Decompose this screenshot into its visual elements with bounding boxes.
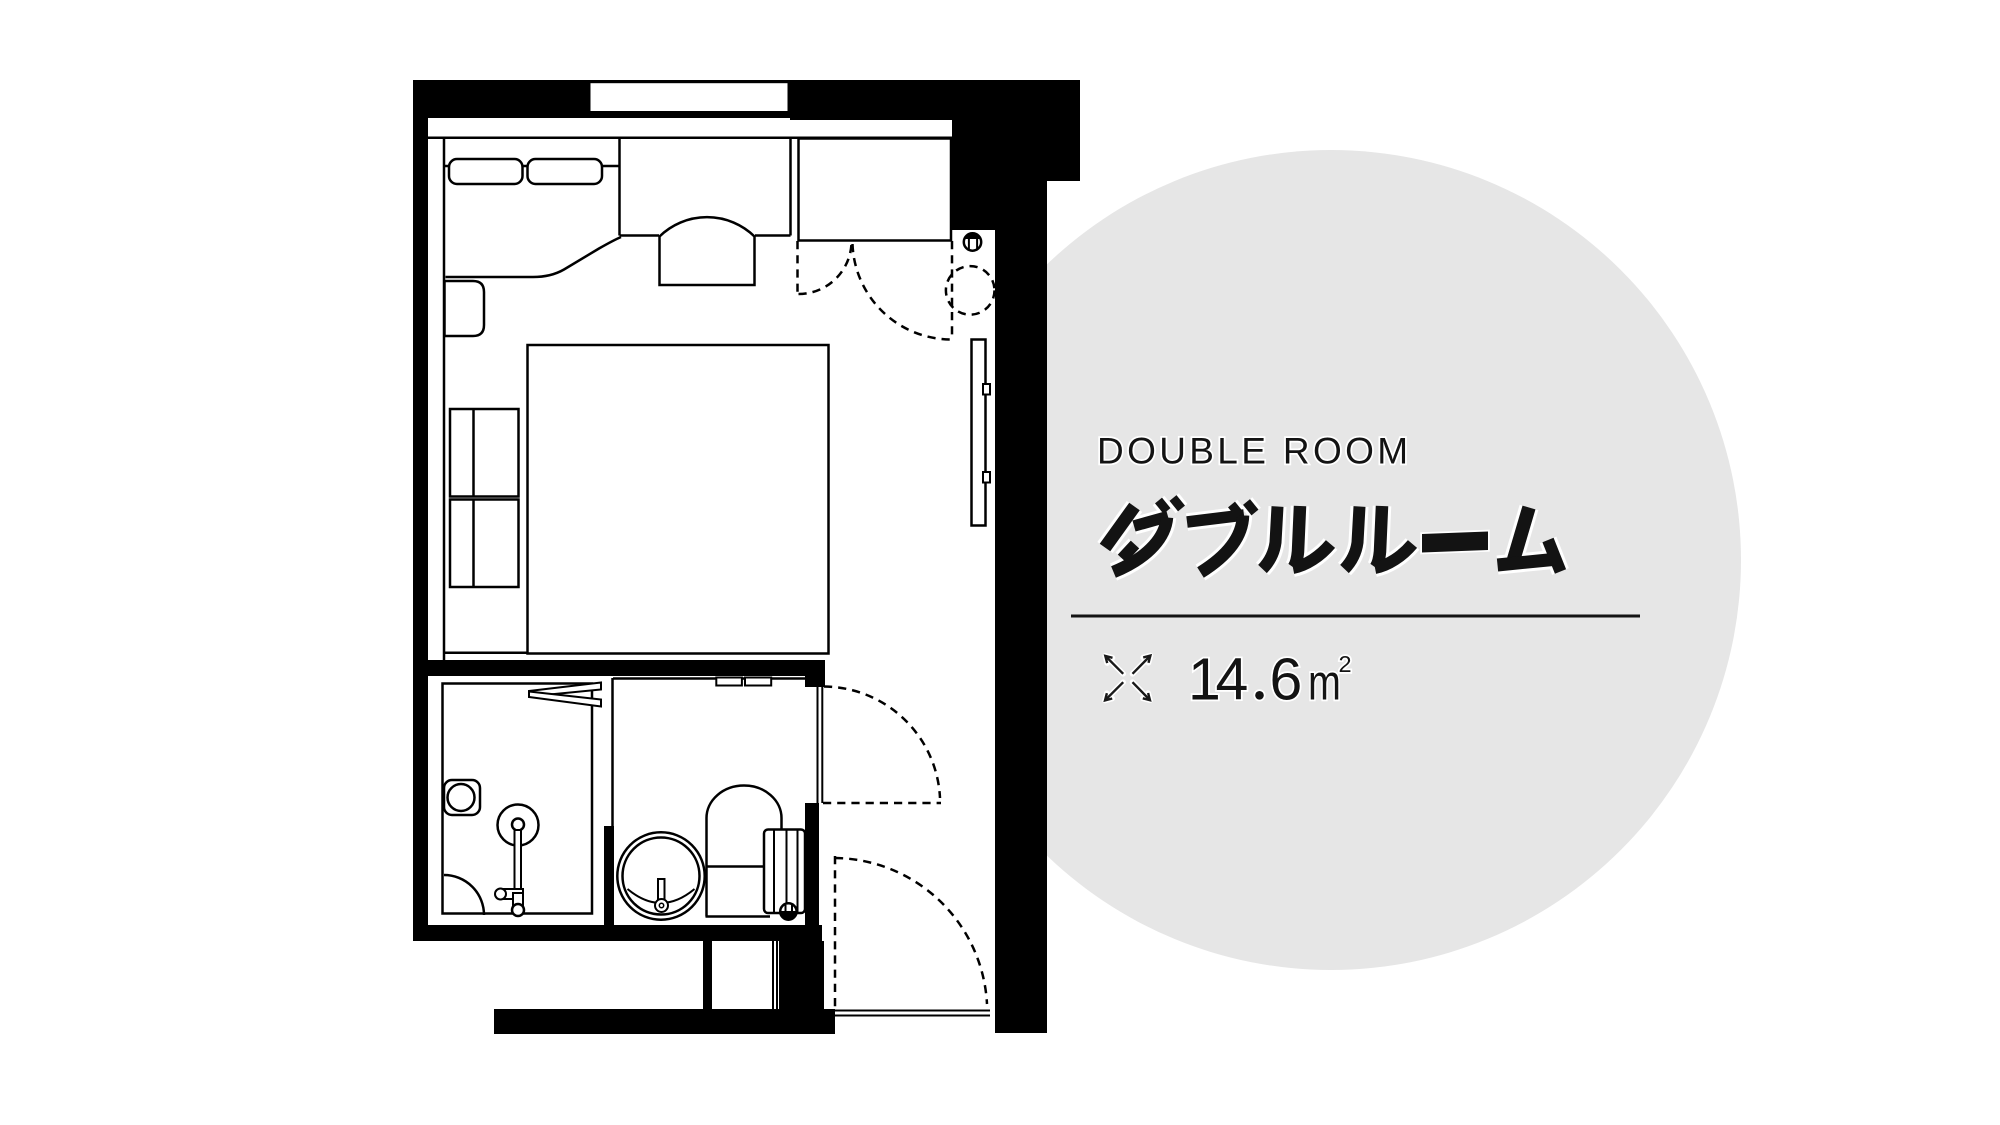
svg-text:146: 146 bbox=[1188, 647, 1302, 713]
svg-text:DOUBLE ROOM: DOUBLE ROOM bbox=[1097, 431, 1411, 472]
svg-text:2: 2 bbox=[1339, 651, 1352, 677]
svg-text:m: m bbox=[1308, 654, 1341, 711]
